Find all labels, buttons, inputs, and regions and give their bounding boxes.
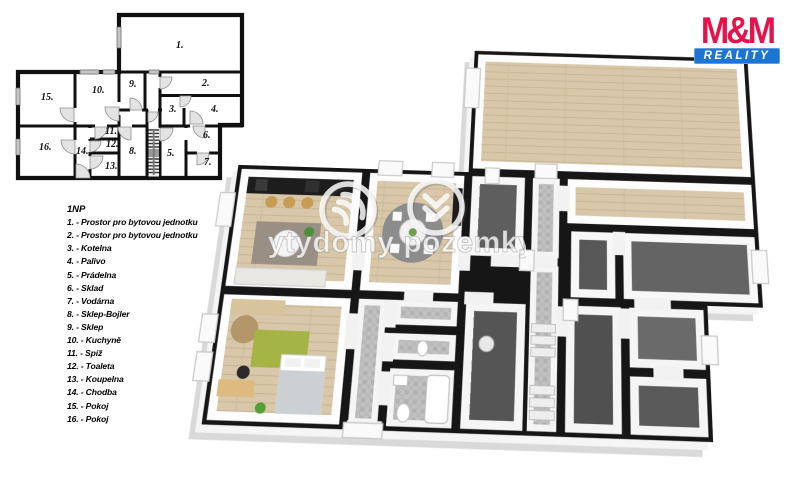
- room-number-label: 1.: [176, 40, 184, 51]
- room-number-label: 13.: [105, 161, 118, 172]
- door-arc: [160, 128, 173, 141]
- door-arc: [60, 108, 74, 122]
- window-marks: [16, 27, 159, 155]
- room-number-label: 15.: [41, 92, 54, 103]
- room-number-label: 2.: [201, 78, 210, 89]
- floor-plan-3d: [224, 26, 772, 444]
- door-arc: [90, 141, 101, 152]
- logo-brand: M&M: [694, 15, 780, 49]
- room-number-label: 9.: [129, 79, 137, 90]
- floor-plan-2d-schematic: 1.2.3.4.5.6.7.8.9.10.11.12.13.14.15.16.: [2, 0, 252, 192]
- door-arc: [61, 140, 75, 154]
- room-number-label: 8.: [129, 146, 137, 157]
- door-arc: [180, 96, 191, 107]
- sofa: [234, 267, 327, 287]
- sink: [393, 375, 408, 386]
- room-number-label: 3.: [168, 104, 177, 115]
- door-arc: [148, 112, 158, 122]
- room-number-label: 4.: [210, 104, 219, 115]
- room-number-label: 5.: [167, 148, 175, 159]
- stairs: [149, 128, 160, 177]
- door-arc: [130, 98, 142, 110]
- room-number-label: 16.: [39, 142, 52, 153]
- desk: [216, 379, 255, 397]
- room-number-label: 12.: [106, 139, 119, 150]
- door-arc: [90, 156, 103, 169]
- wardrobe: [230, 299, 286, 316]
- room-number-label: 14.: [76, 146, 89, 157]
- door-arc: [76, 164, 90, 178]
- room-number-label: 7.: [204, 157, 212, 168]
- floor-plan-3d-render: [176, 27, 800, 483]
- room-number-label: 10.: [92, 85, 105, 96]
- room-number-label: 11.: [105, 126, 117, 137]
- bathtub: [424, 375, 449, 424]
- room-number-label: 6.: [203, 130, 211, 141]
- door-arc: [105, 107, 119, 121]
- door-arc: [160, 77, 172, 89]
- boiler: [479, 336, 494, 352]
- door-arc: [190, 111, 203, 124]
- mm-reality-logo: M&M REALITY: [694, 16, 780, 64]
